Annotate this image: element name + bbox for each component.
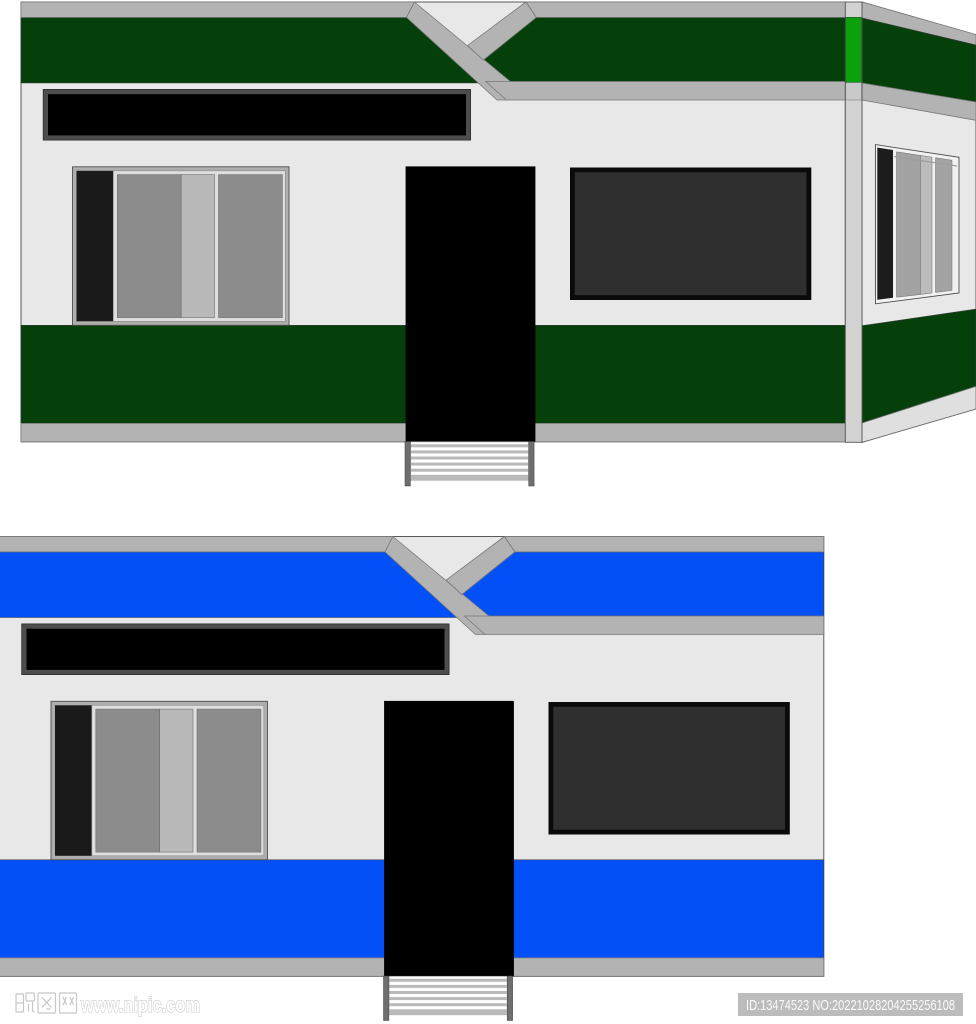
svg-text:www.nipic.com: www.nipic.com [80,994,200,1017]
svg-text:ID:13474523 NO:202210282042552: ID:13474523 NO:20221028204255256108 [746,997,955,1014]
